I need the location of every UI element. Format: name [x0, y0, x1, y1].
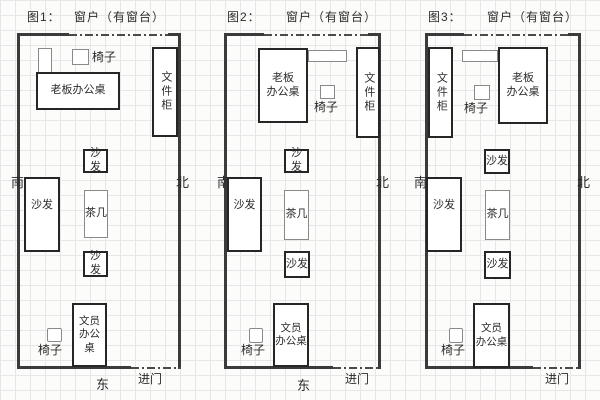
figure3-window-label: 窗户（有窗台）: [487, 11, 578, 23]
figure1-sofa-small-label: 沙发: [85, 250, 106, 278]
figure3-tea-table-label: 茶几: [487, 208, 509, 222]
figure1-compass-south: 南: [11, 176, 24, 189]
figure1-wall-top-right: [168, 33, 181, 36]
figure3-chair-bottom-icon: [449, 328, 463, 343]
figure3-sofa-small: 沙发: [484, 251, 511, 279]
figure1-wall-top-left: [17, 33, 69, 36]
figure2-sofa-small: 沙发: [284, 251, 310, 278]
figure3-chair-bottom-label: 椅子: [441, 344, 465, 356]
figure3-desk-return: [462, 50, 498, 62]
figure2-chair-bottom-icon: [249, 328, 263, 343]
figure1-chair-bottom-icon: [47, 328, 62, 342]
figure3-boss-desk-label: 老板办公桌: [507, 72, 540, 100]
figure3-window-dashed-line: [464, 34, 568, 36]
figure2-chair-top-icon: [320, 85, 335, 99]
figure1-chair-top-label: 椅子: [92, 51, 116, 63]
figure2-boss-desk-label: 老板办公桌: [267, 72, 300, 100]
figure3-chair-top-icon: [474, 85, 490, 100]
figure2-entry-label: 进门: [345, 373, 369, 385]
figure2-clerk-desk: 文员办公桌: [273, 303, 309, 367]
figure1-chair-top-icon: [72, 49, 89, 65]
figure1-tea-table: 茶几: [84, 190, 108, 238]
figure1-entry-label: 进门: [138, 373, 162, 385]
figure1-sofa-left: 沙发: [24, 177, 60, 252]
figure1-sofa-small: 沙发: [83, 251, 108, 277]
figure1-label: 图1：: [27, 11, 61, 23]
figure2-compass-north: 北: [376, 176, 389, 189]
figure3-entry-label: 进门: [545, 373, 569, 385]
figure1-wall-left: [17, 33, 20, 369]
figure1-sofa-left-label: 沙发: [31, 199, 53, 213]
figure2-desk-return: [308, 50, 347, 62]
figure3-label: 图3：: [428, 11, 462, 23]
figure2-sofa-left: 沙发: [227, 177, 262, 252]
figure2-wall-top-right: [368, 33, 381, 36]
figure3-tea-table: 茶几: [485, 190, 510, 240]
figure2-tea-table: 茶几: [284, 190, 309, 240]
figure2-file-cabinet-label: 文件柜: [361, 72, 375, 114]
figure1-file-cabinet-label: 文件柜: [158, 71, 172, 113]
figure2-compass-east: 东: [297, 379, 310, 392]
figure1-sofa-mid-label: 沙发: [85, 147, 106, 175]
figure3-sofa-left: 沙发: [426, 177, 462, 252]
figure1-compass-north: 北: [176, 176, 189, 189]
figure2-tea-table-label: 茶几: [286, 208, 308, 222]
figure2-wall-top-left: [224, 33, 264, 36]
figure3-sofa-mid-label: 沙发: [486, 155, 508, 169]
figure1-compass-east: 东: [96, 378, 109, 391]
figure3-file-cabinet: 文件柜: [428, 47, 453, 138]
figure1-tea-table-label: 茶几: [85, 207, 107, 221]
figure1-boss-desk: 老板办公桌: [36, 72, 120, 110]
figure1-chair-bottom-label: 椅子: [38, 344, 62, 356]
figure3-boss-desk: 老板办公桌: [498, 47, 548, 124]
figure3-file-cabinet-label: 文件柜: [434, 72, 448, 114]
figure3-sofa-small-label: 沙发: [487, 258, 509, 272]
figure2-label: 图2：: [227, 11, 261, 23]
figure1-boss-desk-label: 老板办公桌: [51, 84, 106, 98]
figure2-chair-bottom-label: 椅子: [241, 344, 265, 356]
figure2-clerk-desk-label: 文员办公桌: [275, 322, 307, 348]
figure1-clerk-desk: 文员办公桌: [72, 303, 107, 367]
figure2-sofa-mid-label: 沙发: [286, 147, 307, 175]
figure3-sofa-mid: 沙发: [484, 149, 510, 174]
figure3-compass-north: 北: [577, 176, 590, 189]
figure3-door-dashed-line: [533, 367, 581, 369]
figure2-window-label: 窗户（有窗台）: [286, 11, 377, 23]
figure2-chair-top-label: 椅子: [314, 101, 338, 113]
figure3-clerk-desk: 文员办公桌: [473, 303, 510, 368]
figure3-wall-right: [578, 33, 581, 369]
figure2-file-cabinet: 文件柜: [356, 47, 380, 138]
figure1-wall-right: [178, 33, 181, 369]
figure1-sofa-mid: 沙发: [83, 149, 108, 173]
figure3-clerk-desk-label: 文员办公桌: [476, 322, 508, 348]
figure2-boss-desk: 老板办公桌: [258, 48, 308, 123]
figure3-sofa-left-label: 沙发: [433, 199, 455, 213]
figure1-file-cabinet: 文件柜: [152, 47, 178, 137]
figure3-chair-top-label: 椅子: [464, 102, 488, 114]
figure1-clerk-desk-label: 文员办公桌: [74, 315, 105, 354]
figure1-desk-side-cabinet: [38, 48, 52, 73]
figure3-wall-top-left: [425, 33, 464, 36]
figure1-window-label: 窗户（有窗台）: [74, 11, 165, 23]
figure2-compass-south: 南: [217, 176, 230, 189]
figure1-window-dashed-line: [69, 34, 168, 36]
figure2-door-dashed-line: [333, 367, 381, 369]
figure3-compass-south: 南: [414, 176, 427, 189]
figure1-door-dashed-line: [131, 367, 181, 369]
figure2-sofa-mid: 沙发: [284, 149, 309, 173]
figure2-window-dashed-line: [264, 34, 368, 36]
figure2-sofa-left-label: 沙发: [234, 199, 256, 213]
figure2-sofa-small-label: 沙发: [286, 258, 308, 272]
floor-plan-canvas: 图1： 窗户（有窗台） 椅子 老板办公桌 文件柜 沙发 沙发 茶几 沙发 文员办…: [0, 0, 600, 400]
figure3-wall-top-right: [568, 33, 581, 36]
